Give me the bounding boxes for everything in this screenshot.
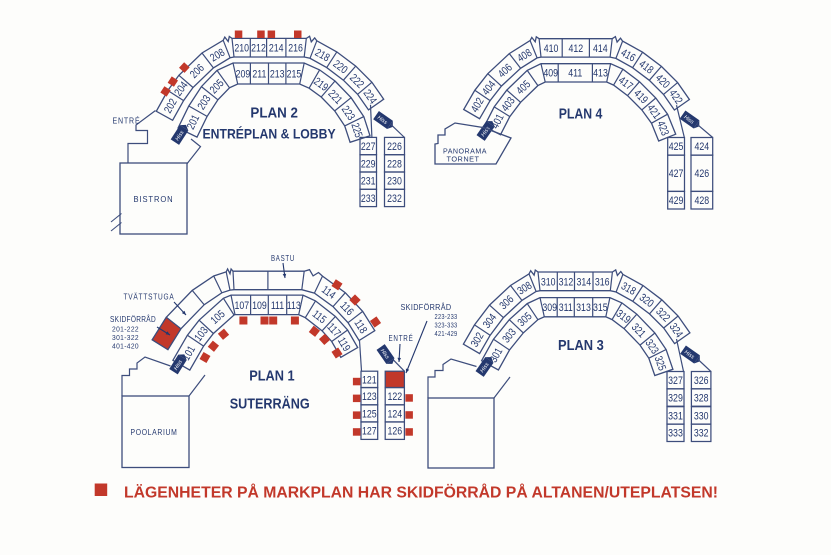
svg-text:SUTERRÄNG: SUTERRÄNG	[230, 396, 310, 413]
svg-text:413: 413	[593, 68, 608, 80]
svg-text:124: 124	[387, 409, 402, 421]
svg-text:333: 333	[668, 428, 683, 440]
svg-text:212: 212	[251, 43, 266, 55]
svg-text:233: 233	[361, 193, 376, 205]
svg-text:314: 314	[576, 276, 591, 288]
svg-text:311: 311	[559, 302, 573, 314]
svg-text:TVÄTTSTUGA: TVÄTTSTUGA	[124, 292, 175, 302]
svg-text:210: 210	[234, 43, 249, 55]
svg-text:PLAN 3: PLAN 3	[558, 337, 604, 354]
svg-text:PLAN 2: PLAN 2	[250, 105, 298, 122]
svg-text:109: 109	[252, 300, 267, 312]
svg-text:229: 229	[361, 158, 376, 170]
svg-text:215: 215	[287, 69, 302, 81]
svg-text:228: 228	[387, 158, 402, 170]
svg-text:327: 327	[668, 375, 683, 387]
svg-text:PLAN 4: PLAN 4	[559, 105, 603, 122]
svg-text:332: 332	[694, 428, 709, 440]
svg-text:231: 231	[361, 176, 376, 188]
svg-text:227: 227	[361, 141, 376, 153]
svg-text:ENTRÉ: ENTRÉ	[389, 333, 414, 343]
svg-text:414: 414	[593, 43, 608, 55]
svg-text:409: 409	[543, 68, 558, 80]
svg-text:113: 113	[287, 300, 301, 312]
svg-text:123: 123	[362, 391, 377, 403]
svg-text:425: 425	[669, 141, 684, 153]
svg-text:SKIDFÖRRÅD: SKIDFÖRRÅD	[401, 302, 452, 312]
svg-text:331: 331	[668, 410, 683, 422]
svg-text:216: 216	[288, 43, 303, 55]
svg-text:326: 326	[694, 375, 709, 387]
svg-text:329: 329	[668, 393, 683, 405]
svg-text:226: 226	[387, 141, 402, 153]
svg-text:122: 122	[387, 391, 402, 403]
svg-text:POOLARIUM: POOLARIUM	[131, 428, 178, 437]
svg-text:410: 410	[544, 43, 559, 55]
svg-text:BISTRON: BISTRON	[134, 194, 174, 204]
svg-text:ENTRÉPLAN & LOBBY: ENTRÉPLAN & LOBBY	[203, 125, 337, 141]
svg-text:313: 313	[576, 302, 591, 314]
svg-text:211: 211	[252, 69, 266, 81]
svg-text:214: 214	[269, 43, 284, 55]
svg-text:BASTU: BASTU	[271, 253, 295, 263]
svg-text:125: 125	[362, 409, 377, 421]
svg-text:309: 309	[542, 302, 557, 314]
svg-text:126: 126	[387, 426, 402, 438]
svg-text:213: 213	[270, 69, 285, 81]
svg-text:316: 316	[595, 276, 610, 288]
svg-text:107: 107	[234, 300, 249, 312]
svg-text:428: 428	[694, 195, 709, 207]
svg-text:232: 232	[387, 193, 402, 205]
svg-text:421-429: 421-429	[435, 329, 458, 338]
svg-text:411: 411	[568, 68, 582, 80]
svg-text:312: 312	[559, 276, 574, 288]
svg-text:424: 424	[694, 141, 709, 153]
svg-text:LÄGENHETER PÅ MARKPLAN HAR SKI: LÄGENHETER PÅ MARKPLAN HAR SKIDFÖRRÅD PÅ…	[124, 483, 718, 502]
svg-text:401-420: 401-420	[112, 342, 139, 351]
svg-text:ENTRÉ: ENTRÉ	[113, 116, 141, 126]
svg-text:429: 429	[669, 195, 684, 207]
svg-text:SKIDFÖRRÅD: SKIDFÖRRÅD	[110, 314, 156, 324]
svg-text:TORNET: TORNET	[447, 155, 480, 164]
svg-text:426: 426	[694, 168, 709, 180]
svg-text:310: 310	[541, 276, 556, 288]
svg-text:PLAN 1: PLAN 1	[249, 368, 294, 385]
svg-text:412: 412	[568, 43, 583, 55]
svg-text:328: 328	[694, 393, 709, 405]
svg-text:427: 427	[669, 168, 684, 180]
svg-text:330: 330	[694, 410, 709, 422]
svg-text:111: 111	[271, 300, 285, 312]
svg-text:230: 230	[387, 176, 402, 188]
svg-text:121: 121	[362, 374, 377, 386]
svg-text:127: 127	[362, 426, 377, 438]
svg-text:315: 315	[593, 302, 608, 314]
svg-text:209: 209	[236, 69, 251, 81]
